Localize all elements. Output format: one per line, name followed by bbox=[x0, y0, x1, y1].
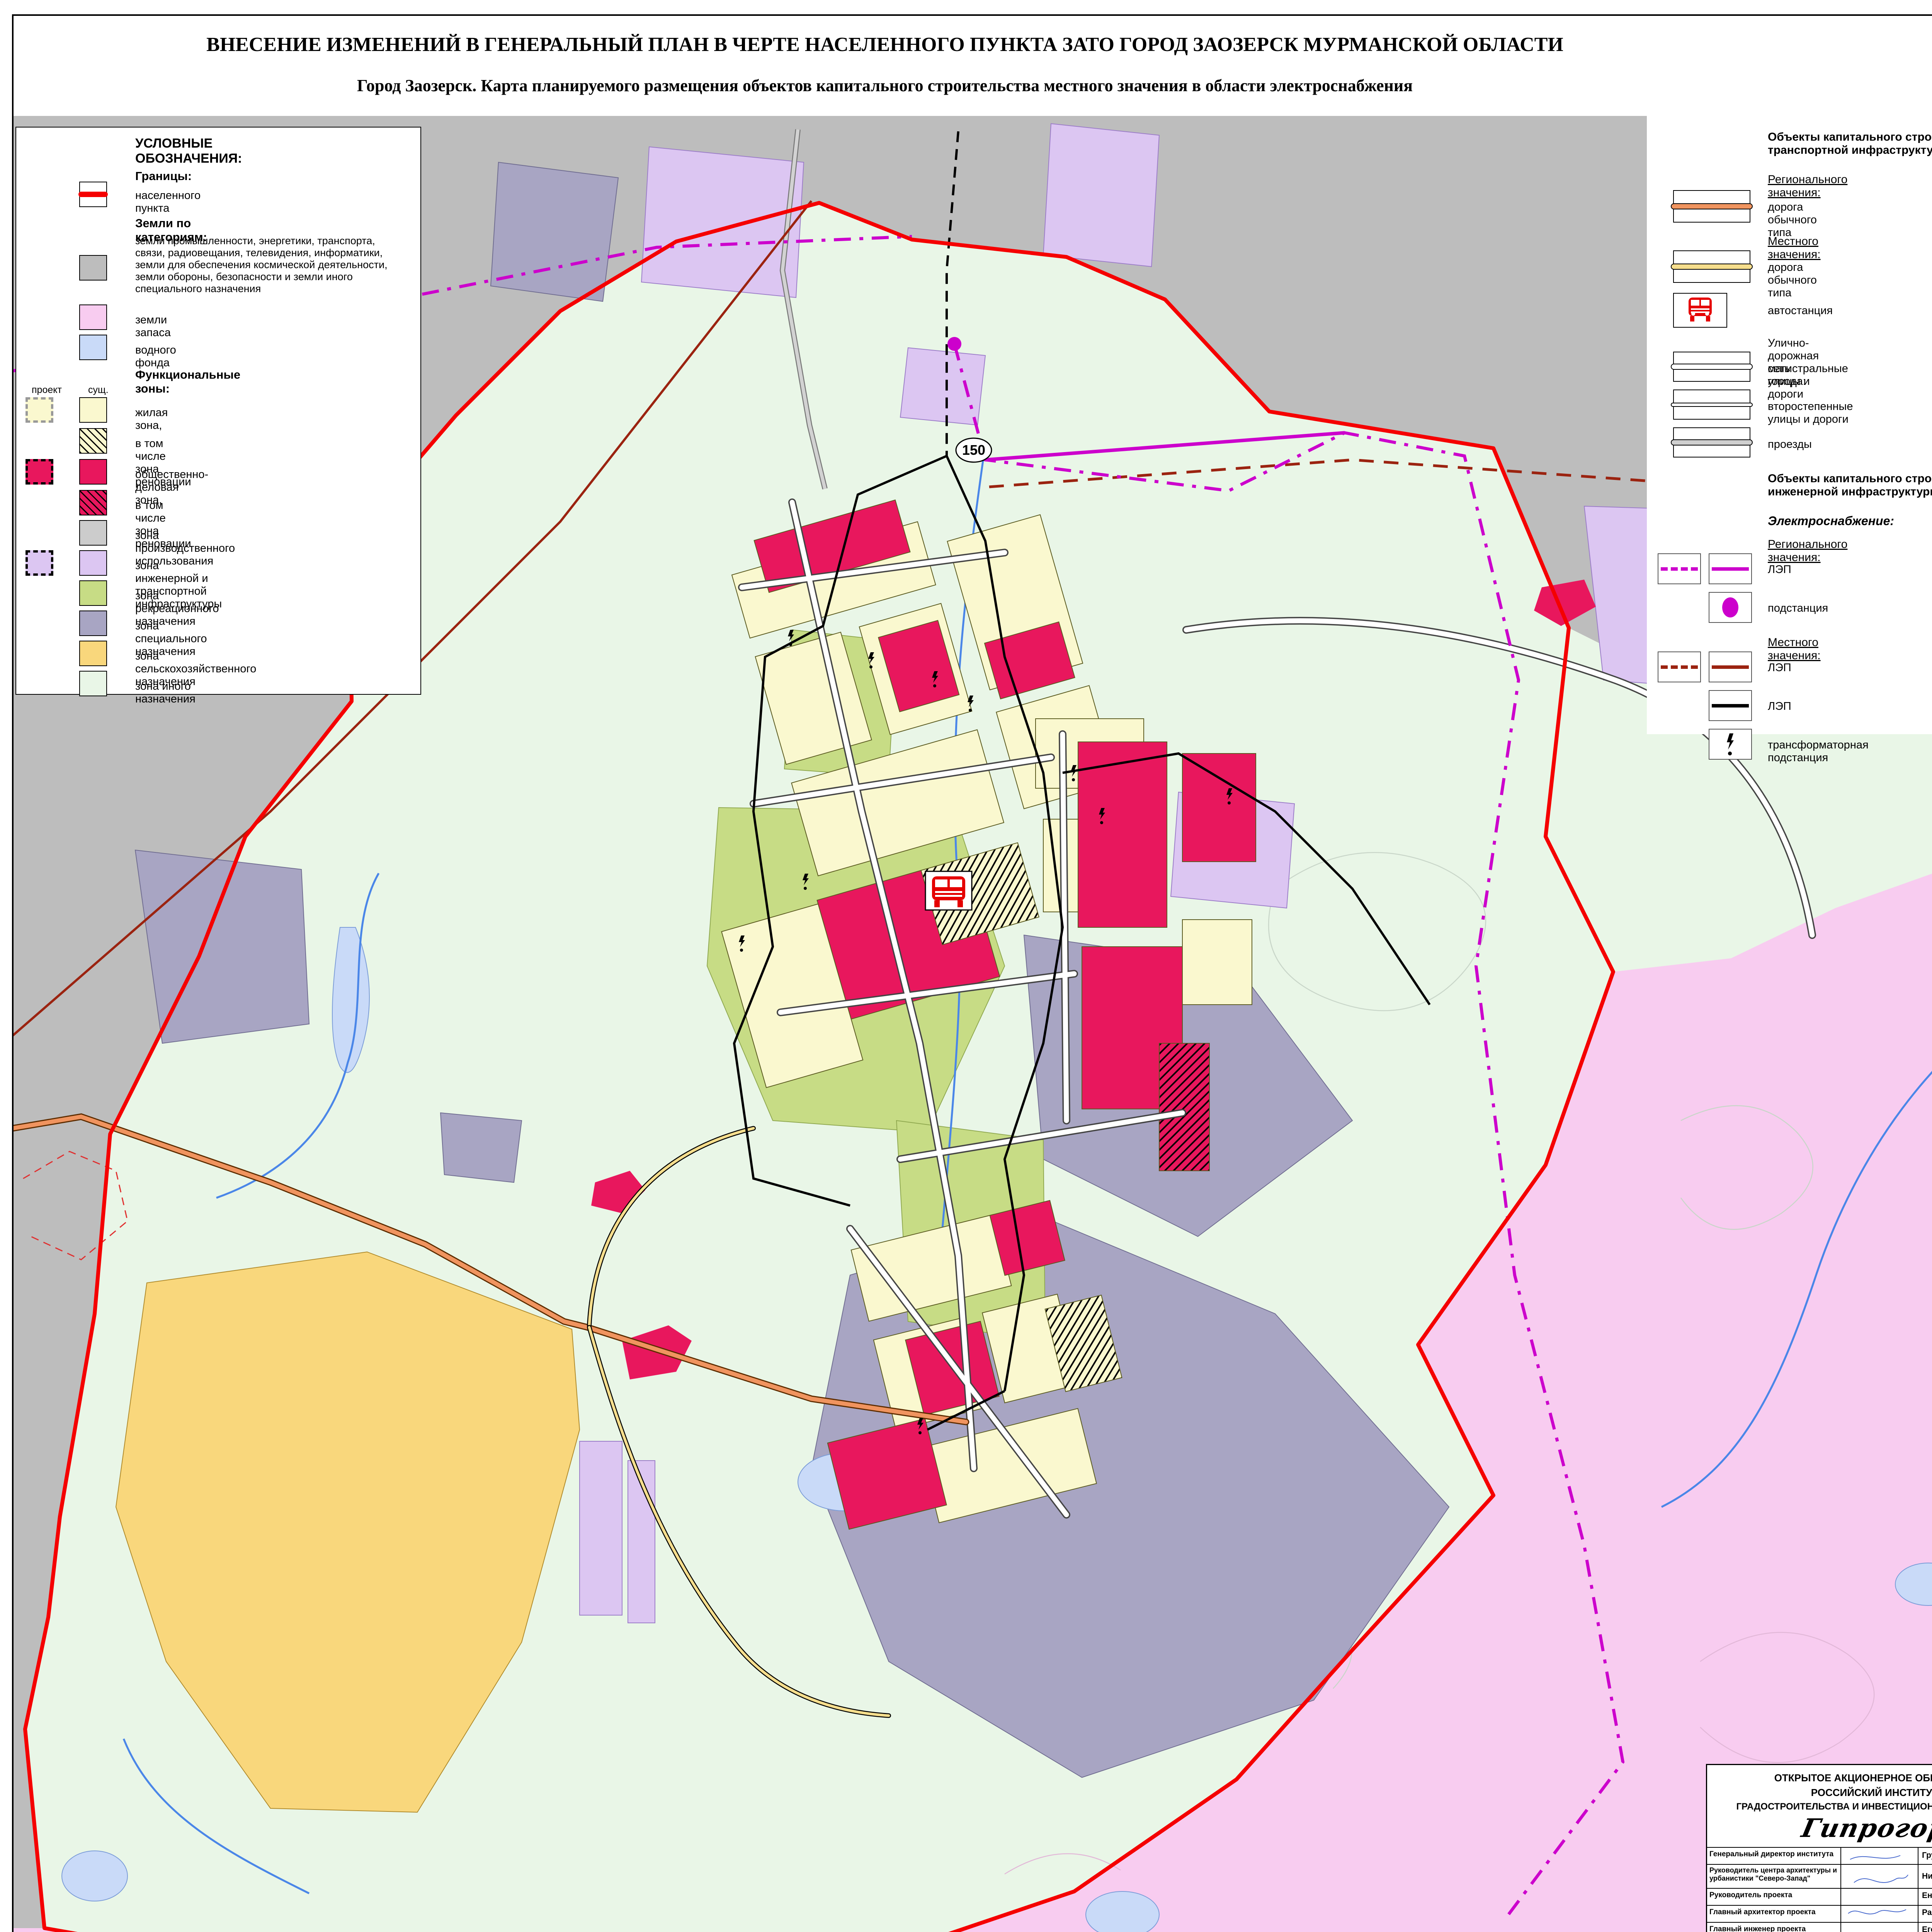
legend-item-label: земли промышленности, энергетики, трансп… bbox=[135, 235, 406, 295]
page-title: ВНЕСЕНИЕ ИЗМЕНЕНИЙ В ГЕНЕРАЛЬНЫЙ ПЛАН В … bbox=[46, 33, 1723, 56]
substation-symbol bbox=[1709, 592, 1752, 623]
role-label: Руководитель центра архитектуры и урбани… bbox=[1709, 1866, 1839, 1883]
page-subtitle: Город Заозерск. Карта планируемого разме… bbox=[46, 76, 1723, 95]
lep-local-symbol bbox=[1709, 651, 1752, 682]
signatures bbox=[1842, 1848, 1916, 1932]
secondary-street-symbol bbox=[1673, 389, 1750, 420]
other-zone-swatch bbox=[79, 671, 107, 696]
legend-local-header: Местного значения: bbox=[1768, 235, 1821, 261]
legend-power-header: Электроснабжение: bbox=[1768, 514, 1894, 528]
public-zone-project-swatch bbox=[26, 459, 53, 485]
driveway-symbol bbox=[1673, 427, 1750, 457]
stamp-org-line3: ГРАДОСТРОИТЕЛЬСТВА И ИНВЕСТИЦИОННОГО РАЗ… bbox=[1707, 1801, 1932, 1812]
legend-item-label: магистральные улицы и дороги bbox=[1768, 362, 1848, 401]
legend-item-label: дорога обычного типа bbox=[1768, 201, 1817, 239]
role-label: Руководитель проекта bbox=[1709, 1891, 1839, 1900]
reserve-lands-swatch bbox=[79, 304, 107, 330]
special-zone-swatch bbox=[79, 611, 107, 636]
legend-item-label: дорога обычного типа bbox=[1768, 261, 1817, 299]
bus-station-marker bbox=[925, 871, 972, 910]
infrastructure-zone-project-swatch bbox=[26, 550, 53, 576]
residential-renovation-swatch bbox=[79, 428, 107, 454]
lightning-icon bbox=[1709, 730, 1751, 759]
role-name: Ратникова И.В. bbox=[1922, 1908, 1932, 1917]
role-label: Главный архитектор проекта bbox=[1709, 1908, 1839, 1917]
legend-local-header2: Местного значения: bbox=[1768, 636, 1821, 662]
role-label: Главный инженер проекта bbox=[1709, 1925, 1839, 1932]
lep-black-symbol bbox=[1709, 690, 1752, 721]
main-street-symbol bbox=[1673, 352, 1750, 382]
legend-item-label: ЛЭП bbox=[1768, 700, 1791, 713]
settlement-boundary-swatch bbox=[79, 182, 107, 207]
role-label: Генеральный директор института bbox=[1709, 1850, 1839, 1859]
role-name: Грудинин М. Ю. bbox=[1922, 1851, 1932, 1860]
legend-item-label: трансформаторная подстанция bbox=[1768, 739, 1869, 764]
sheet: 150 ВНЕСЕНИЕ ИЗМЕНЕНИЙ В ГЕНЕРАЛЬНЫЙ ПЛА… bbox=[0, 0, 1932, 1932]
legend-header: УСЛОВНЫЕ ОБОЗНАЧЕНИЯ: bbox=[135, 136, 242, 166]
legend-item-label: земли запаса bbox=[135, 314, 171, 339]
lep-local-project-symbol bbox=[1658, 651, 1701, 682]
substation-marker bbox=[947, 337, 961, 351]
lep-regional-symbol bbox=[1709, 553, 1752, 584]
legend-regional-header: Регионального значения: bbox=[1768, 173, 1847, 199]
stamp-org-line1: ОТКРЫТОЕ АКЦИОНЕРНОЕ ОБЩЕСТВО bbox=[1707, 1772, 1932, 1784]
svg-text:150: 150 bbox=[962, 442, 985, 458]
recreation-zone-swatch bbox=[79, 580, 107, 606]
role-name: Егорова Г.Л. bbox=[1922, 1925, 1932, 1932]
legend-item-label: автостанция bbox=[1768, 304, 1833, 317]
title-block: ОТКРЫТОЕ АКЦИОНЕРНОЕ ОБЩЕСТВО РОССИЙСКИЙ… bbox=[1706, 1764, 1932, 1932]
legend-item-label: ЛЭП bbox=[1768, 563, 1791, 576]
legend-item-label: подстанция bbox=[1768, 602, 1828, 615]
legend-item-label: жилая зона, bbox=[135, 406, 168, 432]
legend-item-label: населенного пункта bbox=[135, 189, 201, 215]
legend-col-existing: сущ. bbox=[88, 384, 109, 396]
local-road-symbol bbox=[1673, 250, 1750, 283]
role-name: Енина О. С. bbox=[1922, 1891, 1932, 1900]
legend-item-label: второстепенные улицы и дороги bbox=[1768, 400, 1853, 426]
infrastructure-zone-swatch bbox=[79, 550, 107, 576]
public-renovation-swatch bbox=[79, 490, 107, 515]
transformer-symbol bbox=[1709, 729, 1752, 760]
legend-item-label: ЛЭП bbox=[1768, 662, 1791, 674]
stamp-org-line2: РОССИЙСКИЙ ИНСТИТУТ bbox=[1707, 1787, 1932, 1799]
legend-engineering-header: Объекты капитального строительства инжен… bbox=[1768, 472, 1932, 498]
institute-logo: Гипрогор bbox=[1704, 1813, 1932, 1843]
lep-regional-project-symbol bbox=[1658, 553, 1701, 584]
legend-zones-header: Функциональные зоны: bbox=[135, 368, 240, 396]
water-fund-swatch bbox=[79, 335, 107, 360]
legend-col-project: проект bbox=[32, 384, 62, 396]
regional-road-symbol bbox=[1673, 190, 1750, 223]
residential-zone-swatch bbox=[79, 397, 107, 423]
public-zone-swatch bbox=[79, 459, 107, 485]
production-zone-swatch bbox=[79, 520, 107, 546]
industrial-lands-swatch bbox=[79, 255, 107, 281]
agricultural-zone-swatch bbox=[79, 641, 107, 666]
legend-item-label: водного фонда bbox=[135, 344, 176, 369]
legend-item-label: проезды bbox=[1768, 438, 1812, 451]
bus-station-symbol bbox=[1673, 293, 1727, 328]
legend-borders-header: Границы: bbox=[135, 169, 192, 183]
bus-icon bbox=[1674, 294, 1726, 327]
legend-item-label: зона иного назначения bbox=[135, 680, 196, 706]
role-name: Николаевская Н. А. bbox=[1922, 1872, 1932, 1881]
road-shield: 150 bbox=[956, 438, 992, 462]
legend-regional-header2: Регионального значения: bbox=[1768, 538, 1847, 564]
legend-transport-header: Объекты капитального строительства транс… bbox=[1768, 131, 1932, 157]
residential-zone-project-swatch bbox=[26, 397, 53, 423]
